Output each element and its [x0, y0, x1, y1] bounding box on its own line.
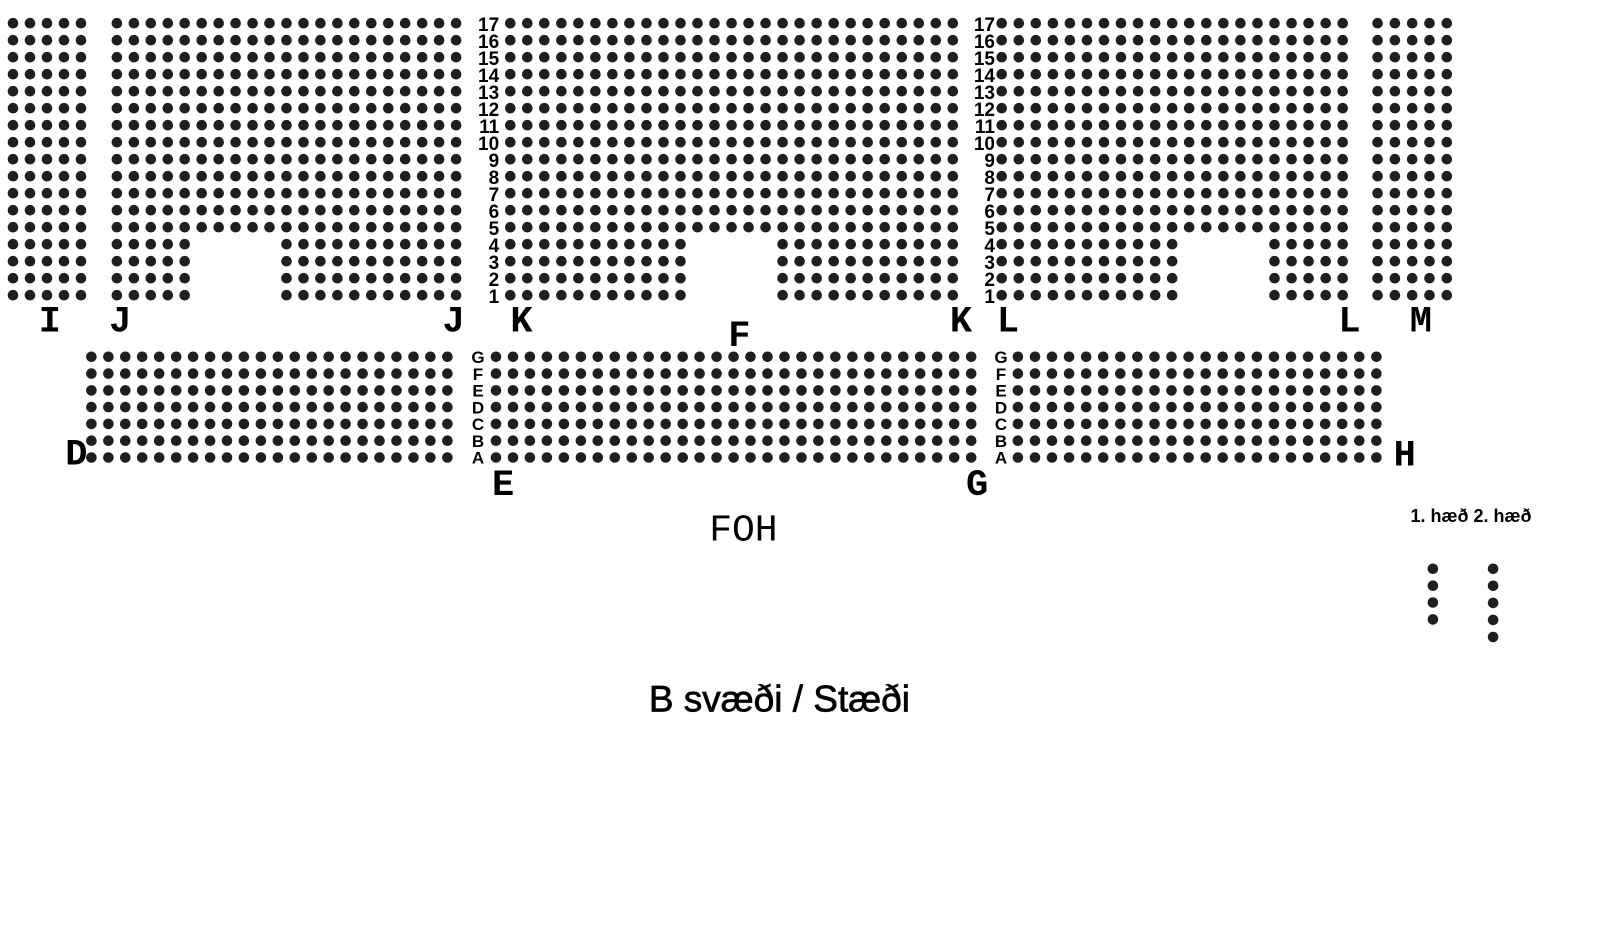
svg-text:E: E — [492, 465, 514, 507]
svg-text:J: J — [109, 302, 131, 344]
svg-text:1: 1 — [984, 287, 995, 308]
svg-text:K: K — [510, 302, 533, 344]
svg-text:G: G — [966, 465, 988, 507]
svg-text:A: A — [472, 449, 484, 468]
svg-text:J: J — [442, 302, 464, 344]
svg-text:1. hæð 2. hæð: 1. hæð 2. hæð — [1411, 506, 1532, 526]
svg-text:I: I — [39, 302, 61, 344]
svg-text:A: A — [995, 449, 1007, 468]
svg-text:FOH: FOH — [709, 510, 777, 553]
svg-text:F: F — [728, 316, 750, 358]
svg-text:K: K — [950, 302, 973, 344]
svg-text:L: L — [997, 302, 1019, 344]
svg-text:B svæði / Stæði: B svæði / Stæði — [649, 679, 910, 720]
svg-text:D: D — [65, 434, 87, 476]
svg-text:M: M — [1410, 302, 1432, 344]
svg-text:1: 1 — [489, 287, 500, 308]
svg-text:L: L — [1338, 302, 1360, 344]
svg-text:H: H — [1394, 436, 1416, 478]
